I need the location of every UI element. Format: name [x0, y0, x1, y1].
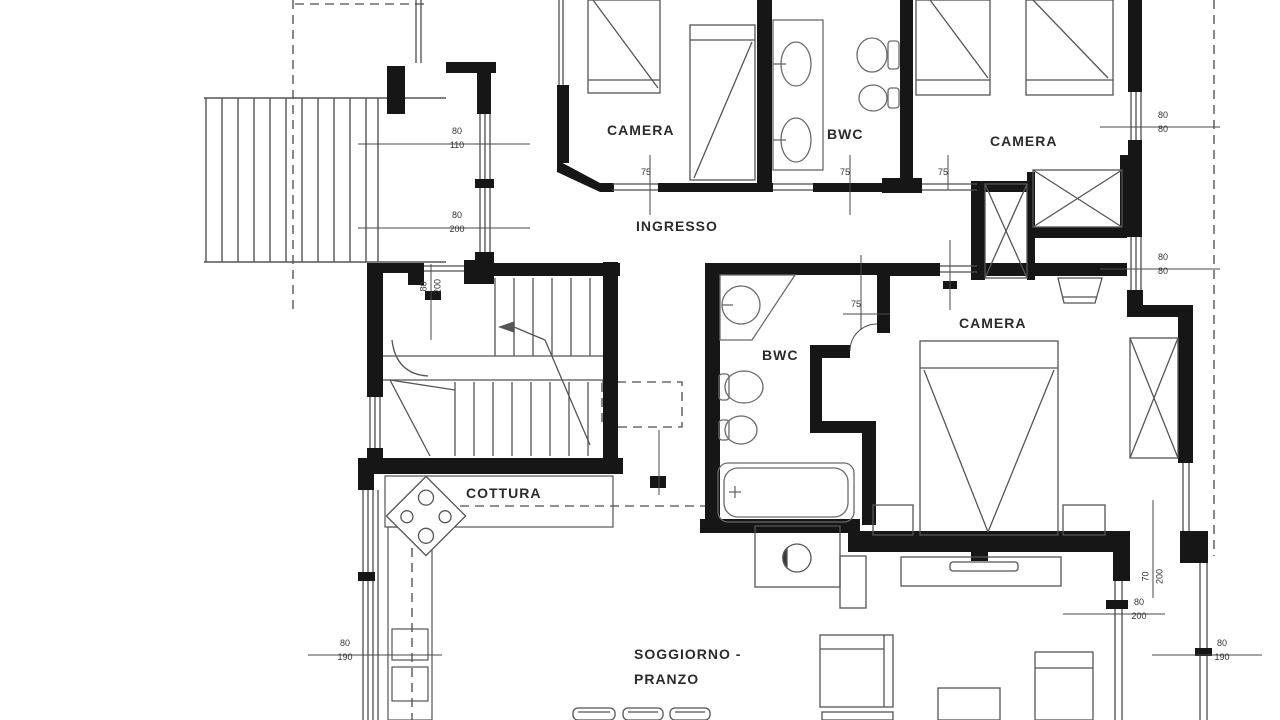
- room-label-bwc-middle: BWC: [762, 347, 798, 363]
- dimension-right-window-upper: 80 80: [1146, 111, 1180, 134]
- dimension-right-window-lower: 80 190: [1205, 639, 1239, 662]
- room-label-camera-top-left: CAMERA: [607, 122, 674, 138]
- dimension-left-door: 80 200: [440, 211, 474, 234]
- floor-plan-drawing: [0, 0, 1280, 720]
- dimension-door-camera-top-left: 75: [641, 168, 651, 177]
- room-label-camera-right: CAMERA: [959, 315, 1026, 331]
- dimension-left-window-upper: 80 110: [440, 127, 474, 150]
- dimension-right-door-lower: 80 200: [1122, 598, 1156, 621]
- room-label-camera-top-right: CAMERA: [990, 133, 1057, 149]
- dimension-right-window-mid: 80 80: [1146, 253, 1180, 276]
- room-label-cottura: COTTURA: [466, 485, 541, 501]
- room-label-ingresso: INGRESSO: [636, 218, 718, 234]
- exterior-staircase: [204, 98, 446, 262]
- bathroom-middle-fixtures: [718, 275, 854, 522]
- dimension-door-camera-top-right: 75: [938, 168, 948, 177]
- dimension-door-bwc-middle: 75: [851, 300, 861, 309]
- room-label-soggiorno-line2: PRANZO: [634, 671, 699, 687]
- dimension-right-passage: 70 200: [1142, 560, 1165, 594]
- dimension-door-bwc-top: 75: [840, 168, 850, 177]
- room-label-soggiorno-line1: SOGGIORNO -: [634, 646, 741, 662]
- dimension-left-window-lower: 80 190: [328, 639, 362, 662]
- dashed-boundary-lines: [293, 0, 1214, 720]
- dimension-stair-door: 80 200: [420, 270, 443, 304]
- bathroom-top-fixtures: [773, 20, 899, 170]
- living-room-furniture: [573, 526, 1093, 720]
- stove: [386, 476, 465, 555]
- room-label-bwc-top: BWC: [827, 126, 863, 142]
- floor-plan: CAMERA BWC CAMERA INGRESSO BWC CAMERA CO…: [0, 0, 1280, 720]
- internal-staircase: [383, 278, 603, 456]
